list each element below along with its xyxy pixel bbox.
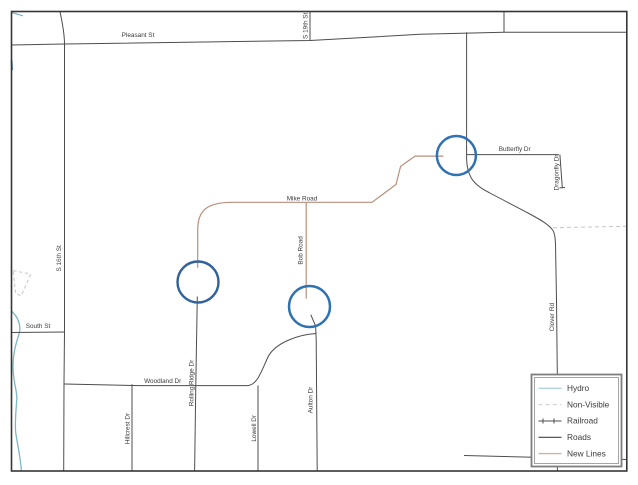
svg-text:New Lines: New Lines bbox=[567, 448, 606, 458]
svg-text:S 16th St: S 16th St bbox=[56, 245, 63, 272]
svg-text:S 19th St: S 19th St bbox=[302, 12, 309, 39]
svg-text:Mike Road: Mike Road bbox=[287, 195, 318, 202]
svg-text:Non-Visible: Non-Visible bbox=[567, 399, 610, 409]
svg-text:Hillcrest Dr: Hillcrest Dr bbox=[124, 412, 131, 444]
svg-text:Clover Rd: Clover Rd bbox=[549, 303, 556, 332]
svg-text:Aulton Dr: Aulton Dr bbox=[307, 386, 314, 414]
svg-text:Butterfly Dr: Butterfly Dr bbox=[499, 146, 532, 153]
svg-text:Woodland Dr: Woodland Dr bbox=[144, 378, 182, 385]
svg-text:Pleasant St: Pleasant St bbox=[122, 32, 155, 39]
svg-text:Roads: Roads bbox=[567, 432, 591, 442]
svg-text:Lowell Dr: Lowell Dr bbox=[251, 414, 258, 442]
svg-text:Dragonfly Dr: Dragonfly Dr bbox=[553, 154, 560, 191]
svg-text:Railroad: Railroad bbox=[567, 416, 598, 426]
svg-text:Bob Road: Bob Road bbox=[297, 236, 304, 265]
svg-text:Rolling Ridge Dr: Rolling Ridge Dr bbox=[189, 359, 196, 406]
svg-text:South St: South St bbox=[26, 323, 51, 330]
svg-text:Hydro: Hydro bbox=[567, 383, 590, 393]
